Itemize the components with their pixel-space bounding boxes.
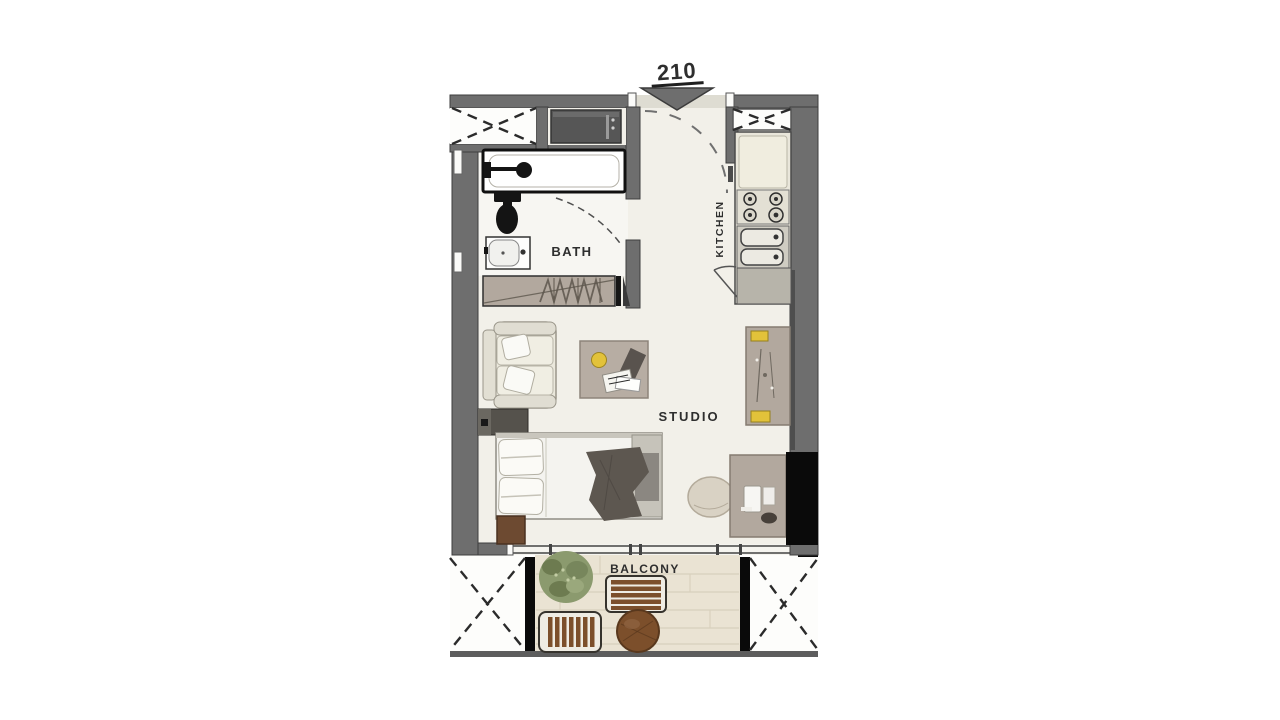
floor-plan-page: BATH bbox=[0, 0, 1280, 720]
balcony-left-divider bbox=[525, 557, 535, 652]
unit-number: 210 bbox=[656, 58, 697, 86]
balcony-label: BALCONY bbox=[610, 562, 680, 576]
adjacent-unit-top-left bbox=[450, 108, 536, 144]
bath-wall-lower bbox=[626, 240, 640, 308]
balcony-bench bbox=[606, 576, 666, 612]
wardrobe bbox=[483, 276, 630, 306]
fridge bbox=[739, 136, 787, 188]
sofa bbox=[483, 322, 556, 408]
studio-label: STUDIO bbox=[658, 409, 719, 424]
kitchen-label: KITCHEN bbox=[714, 200, 726, 257]
stove bbox=[737, 190, 789, 224]
nightstand bbox=[497, 516, 525, 544]
coffee-table bbox=[580, 341, 648, 398]
floor-plan-drawing: BATH bbox=[0, 0, 1280, 720]
balcony-chair bbox=[539, 612, 601, 652]
pouf bbox=[688, 477, 734, 517]
bath-label: BATH bbox=[551, 244, 592, 259]
left-wall bbox=[452, 152, 478, 555]
balcony-table bbox=[617, 610, 659, 652]
bathtub bbox=[483, 150, 625, 192]
bathroom-sink bbox=[484, 237, 530, 269]
dresser bbox=[730, 455, 786, 537]
tv-cabinet bbox=[478, 409, 528, 435]
balcony-right-divider bbox=[740, 557, 750, 652]
bed bbox=[496, 433, 662, 521]
washer-closet bbox=[548, 108, 626, 145]
plant bbox=[539, 551, 593, 603]
kitchen-sink bbox=[737, 226, 789, 268]
structural-column bbox=[786, 452, 818, 545]
kitchen-lower-counter bbox=[737, 268, 791, 304]
adjacent-unit-top-right bbox=[733, 109, 791, 130]
desk bbox=[746, 327, 790, 425]
bath-wall-upper bbox=[626, 107, 640, 199]
